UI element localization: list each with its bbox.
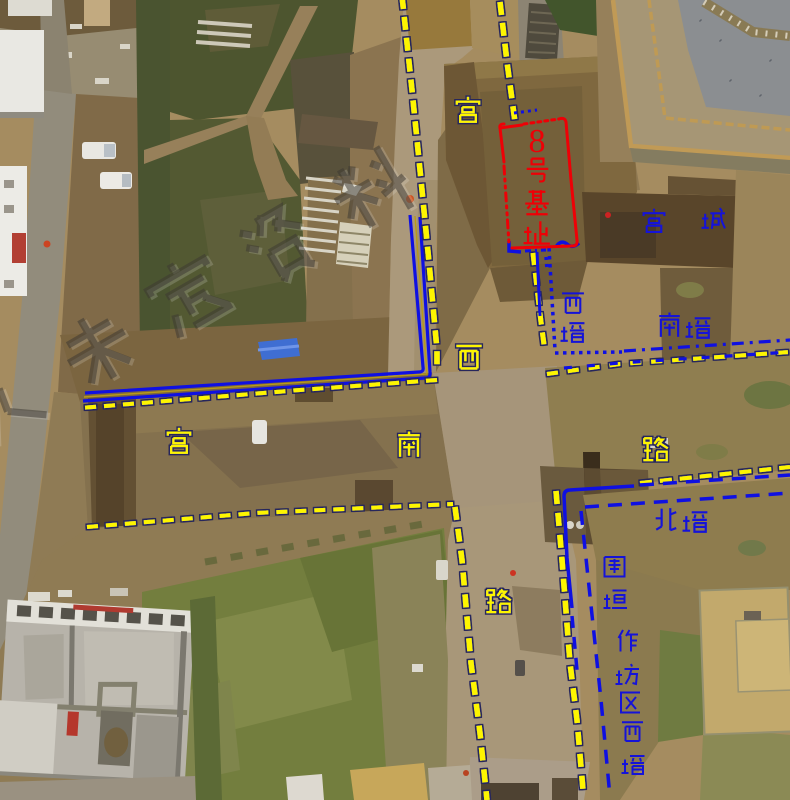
svg-text:8: 8 bbox=[529, 123, 546, 160]
